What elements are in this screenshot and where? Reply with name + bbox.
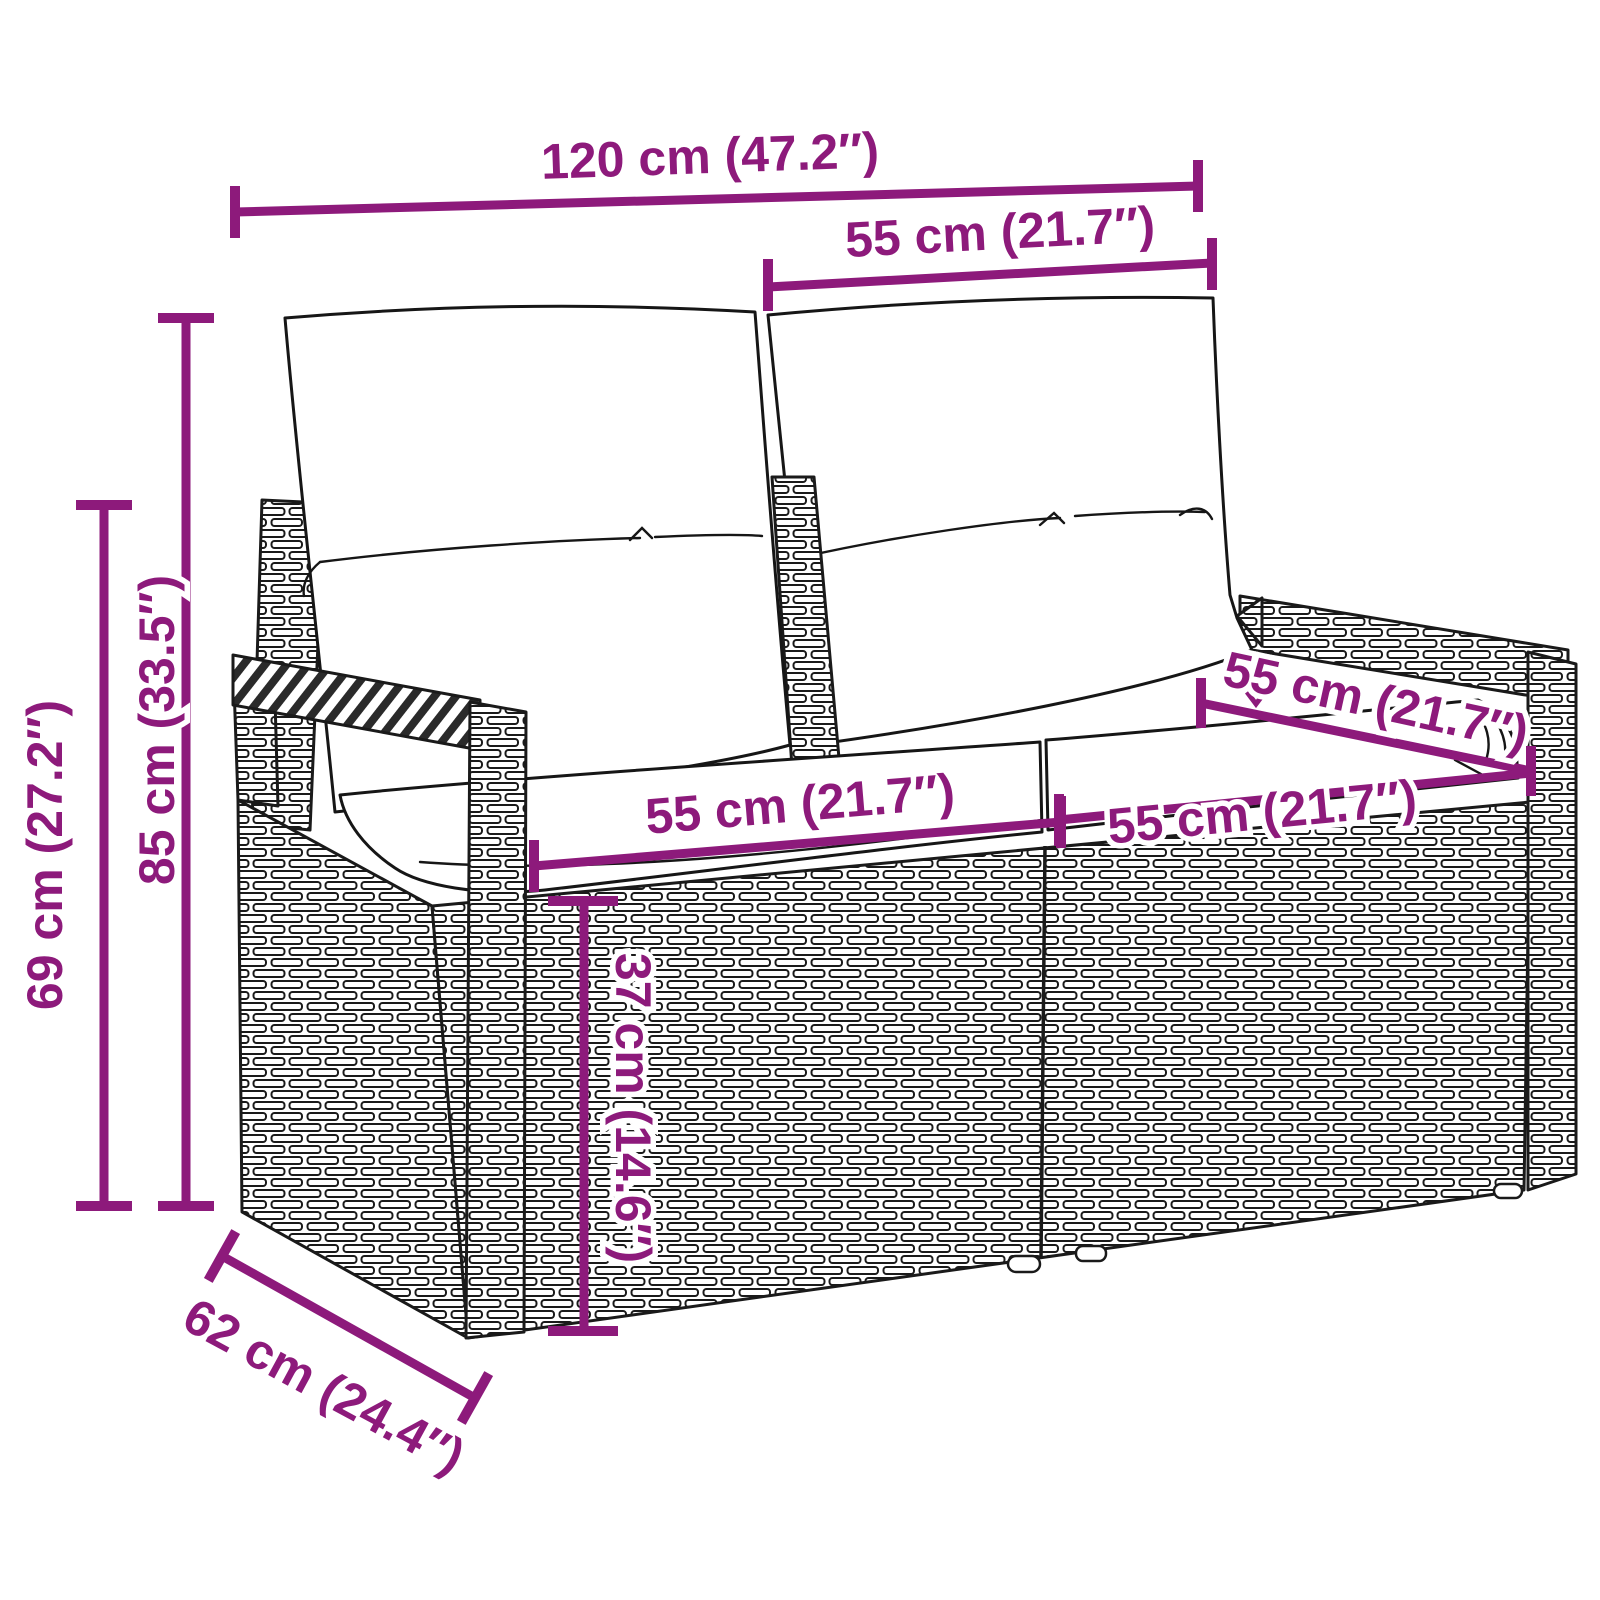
seat-height-label: 37 cm (14.6″) — [605, 953, 661, 1263]
dimension-diagram: 120 cm (47.2″) 55 cm (21.7″) 85 cm (33.5… — [0, 0, 1600, 1600]
dimension-back-cushion-width: 55 cm (21.7″) — [768, 196, 1212, 311]
bench-foot — [1494, 1184, 1522, 1198]
back-cushion-width-label: 55 cm (21.7″) — [844, 196, 1157, 268]
dimension-total-height: 85 cm (33.5″) — [129, 318, 214, 1206]
dimension-side-height: 69 cm (27.2″) — [17, 505, 132, 1206]
side-height-label: 69 cm (27.2″) — [17, 700, 73, 1010]
bench-foot — [1008, 1256, 1040, 1272]
right-arm-post — [1528, 652, 1576, 1190]
total-height-label: 85 cm (33.5″) — [129, 575, 185, 885]
left-back-pillow — [285, 306, 790, 812]
overall-width-label: 120 cm (47.2″) — [540, 122, 880, 190]
left-arm-front-post — [466, 702, 526, 1338]
bench-foot — [1076, 1246, 1106, 1261]
bench-dimension-drawing: 120 cm (47.2″) 55 cm (21.7″) 85 cm (33.5… — [0, 0, 1600, 1600]
